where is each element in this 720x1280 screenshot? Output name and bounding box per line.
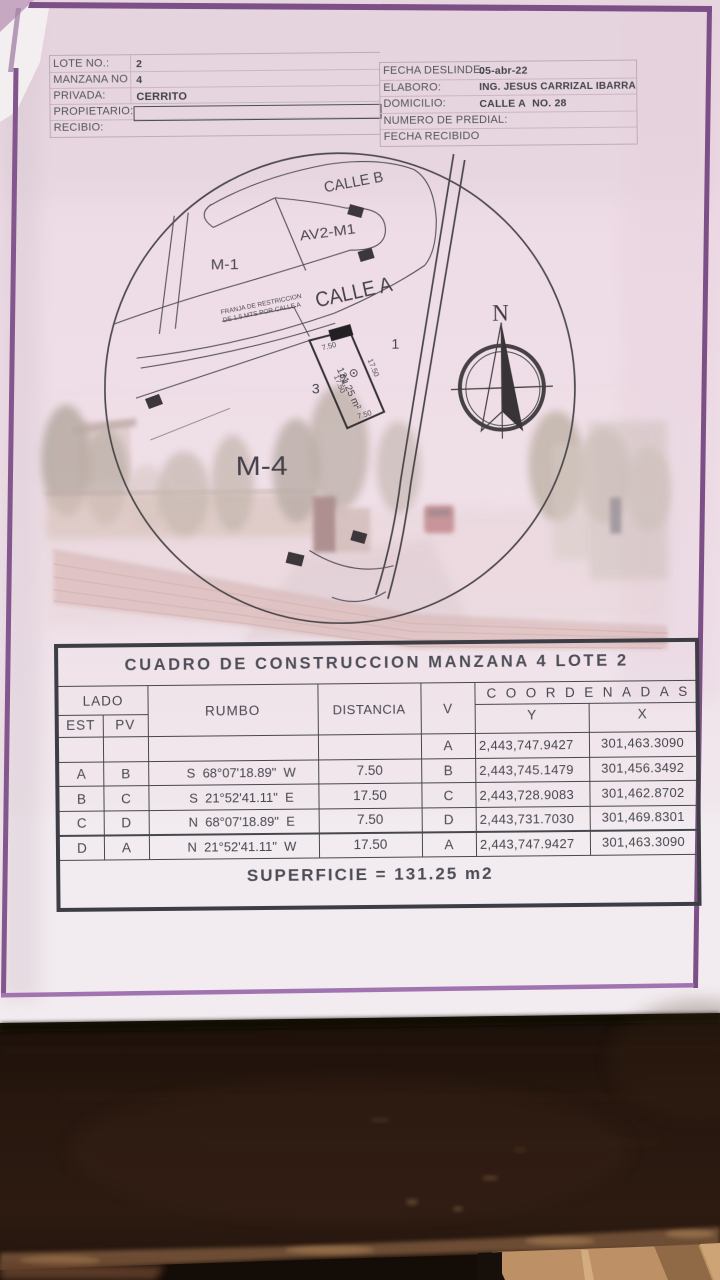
svg-text:1: 1 [391, 336, 399, 352]
svg-text:M-4: M-4 [235, 451, 287, 481]
svg-text:N: N [492, 301, 509, 326]
svg-text:M-1: M-1 [211, 256, 239, 273]
svg-text:3: 3 [312, 380, 320, 396]
